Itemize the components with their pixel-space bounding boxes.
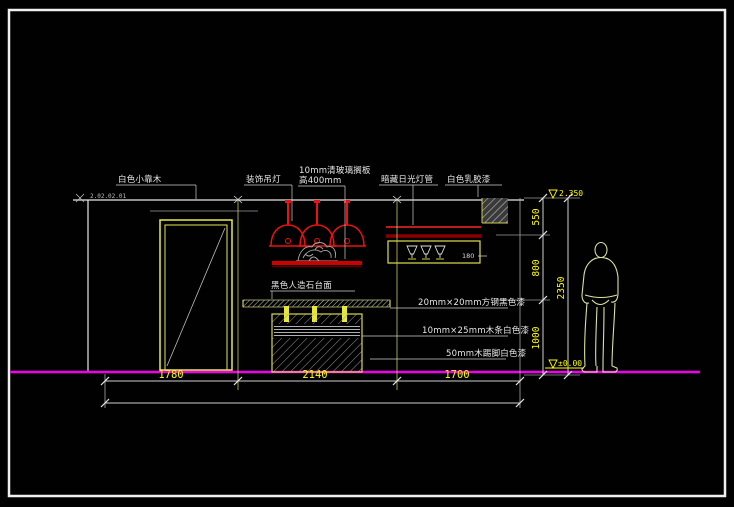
dim-2140: 2140	[302, 369, 327, 381]
callout-pendant-lamp: 装饰吊灯	[246, 174, 281, 185]
counter-band-top	[272, 314, 362, 324]
callout-glass-shelf-line2: 高400mm	[299, 175, 341, 186]
cad-elevation-sheet: 2.02.02.01	[0, 0, 734, 507]
callout-wall-top: 白色小靠木	[118, 174, 162, 185]
pendant-lamp-group	[269, 200, 366, 246]
wine-glass-icon	[435, 246, 445, 259]
callout-steel-frame: 20mm×20mm方钢黑色漆	[418, 297, 525, 308]
door-frame	[160, 220, 232, 370]
callout-cove-light: 暗藏日光灯管	[381, 174, 433, 185]
cabinet-inner-dim: 180	[462, 252, 474, 260]
dim-550: 550	[531, 208, 542, 225]
elevation-drawing: 2.02.02.01	[0, 0, 734, 507]
sheet-border	[9, 10, 725, 496]
ceiling-datum-marker	[76, 194, 84, 202]
dim-800: 800	[531, 259, 542, 276]
wine-glass-icon	[407, 246, 417, 259]
dim-2350: 2350	[556, 276, 567, 299]
elevation-floor-value: ±0.00	[558, 359, 582, 368]
dim-1780: 1780	[158, 369, 183, 381]
callout-glass-shelf-line1: 10mm清玻璃搁板	[299, 165, 371, 176]
door	[150, 211, 258, 370]
dim-1700: 1700	[444, 369, 469, 381]
callout-wall-finish: 白色乳胶漆	[447, 174, 491, 185]
elevation-ceiling-value: 2.350	[559, 189, 583, 198]
countertop	[243, 300, 390, 307]
wine-glass-icon	[421, 246, 431, 259]
elevation-marker-ceiling: 2.350	[549, 189, 583, 198]
person-figure	[582, 243, 618, 373]
bottom-dimension-chain: 1780 2140 1700	[101, 369, 524, 407]
counter-band-bottom	[272, 338, 362, 372]
display-shelf	[272, 263, 362, 267]
wine-cabinet: 180	[386, 227, 487, 263]
ceiling-note: 2.02.02.01	[90, 193, 127, 200]
dim-1000: 1000	[531, 326, 542, 349]
wall-hatch-block	[482, 198, 508, 223]
callout-counter-top: 黑色人造石台面	[271, 280, 332, 291]
callout-skirting: 50mm木踢脚白色漆	[446, 348, 527, 359]
elevation-marker-floor: ±0.00	[545, 359, 584, 368]
callout-wood-strip: 10mm×25mm木条白色漆	[422, 325, 529, 336]
counter-wood-strips	[274, 327, 360, 336]
door-swing-diagonal	[167, 228, 225, 366]
